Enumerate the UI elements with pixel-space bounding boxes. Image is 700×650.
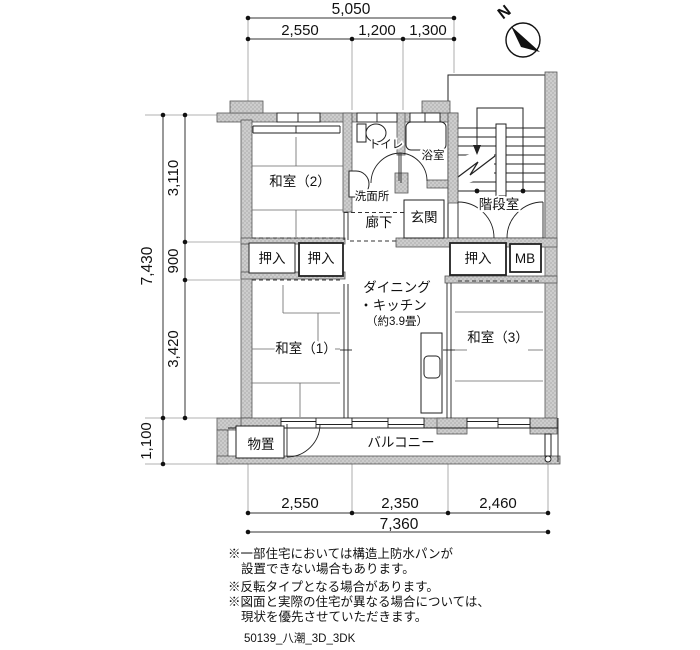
floorplan-page: 5,050 2,550 1,200 1,300 7,430 3,110 900 …	[0, 0, 700, 650]
dim-left-seg-2: 900	[165, 248, 182, 273]
north-compass: N	[495, 2, 540, 57]
dim-bottom-seg-2: 2,350	[381, 495, 419, 512]
note-line-5: 現状を優先させていただきます。	[241, 610, 427, 624]
room-label-washroom: 洗面所	[355, 190, 390, 203]
note-line-2: 設置できない場合もあります。	[241, 561, 415, 576]
drawing-id: 50139_八潮_3D_3DK	[244, 631, 356, 645]
dim-top-seg-3: 1,300	[409, 22, 447, 39]
room-label-dk-1: ダイニング	[363, 280, 431, 295]
room-label-storage: 物置	[248, 437, 275, 452]
room-label-washitsu-2: 和室（2）	[269, 173, 331, 189]
dim-left-balcony: 1,100	[138, 422, 155, 460]
dim-top-seg-2: 1,200	[358, 22, 396, 39]
room-label-washitsu-1: 和室（1）	[275, 340, 337, 356]
room-label-balcony: バルコニー	[367, 435, 434, 450]
dim-bottom-seg-1: 2,550	[281, 495, 319, 512]
dim-left-seg-3: 3,420	[165, 330, 182, 368]
room-label-bath: 浴室	[422, 148, 445, 162]
floorplan-svg: 5,050 2,550 1,200 1,300 7,430 3,110 900 …	[0, 0, 700, 650]
drain-outlet	[545, 456, 551, 462]
dim-left-seg-1: 3,110	[165, 160, 182, 196]
room-label-hallway: 廊下	[366, 214, 393, 230]
dim-top-total: 5,050	[332, 1, 371, 18]
notes-block: ※一部住宅においては構造上防水パンが 設置できない場合もあります。 ※反転タイプ…	[228, 546, 490, 645]
room-label-mb: MB	[515, 251, 535, 266]
note-line-3: ※反転タイプとなる場合があります。	[228, 579, 439, 594]
room-label-dk-2: ・キッチン	[359, 298, 427, 313]
room-label-washitsu-3: 和室（3）	[467, 329, 529, 345]
dim-bottom-total: 7,360	[380, 516, 419, 533]
dim-bottom-seg-3: 2,460	[479, 495, 517, 512]
bathtub	[406, 122, 446, 150]
note-line-1: ※一部住宅においては構造上防水パンが	[228, 546, 454, 561]
drain-pipe	[545, 434, 551, 456]
dim-left-total: 7,430	[139, 246, 156, 285]
room-label-closet-3: 押入	[465, 251, 492, 266]
toilet-tank	[357, 124, 366, 142]
kitchen-sink	[424, 356, 440, 378]
compass-north-label: N	[495, 2, 515, 23]
room-label-toilet: トイレ	[369, 139, 404, 151]
note-line-4: ※図面と実際の住宅が異なる場合については、	[228, 594, 490, 609]
room-label-closet-1: 押入	[259, 251, 286, 266]
stairwell-structure	[448, 75, 545, 238]
room-labels: 和室（2） トイレ 浴室 階段室 洗面所 廊下 玄関 押入 押入 押入 MB ダ…	[248, 139, 536, 452]
dim-top-seg-1: 2,550	[281, 22, 319, 39]
room-label-stairwell: 階段室	[479, 196, 520, 212]
room-label-entrance: 玄関	[411, 209, 438, 225]
room-label-closet-2: 押入	[308, 251, 335, 266]
room-label-dk-3: （約3.9畳）	[366, 314, 428, 328]
